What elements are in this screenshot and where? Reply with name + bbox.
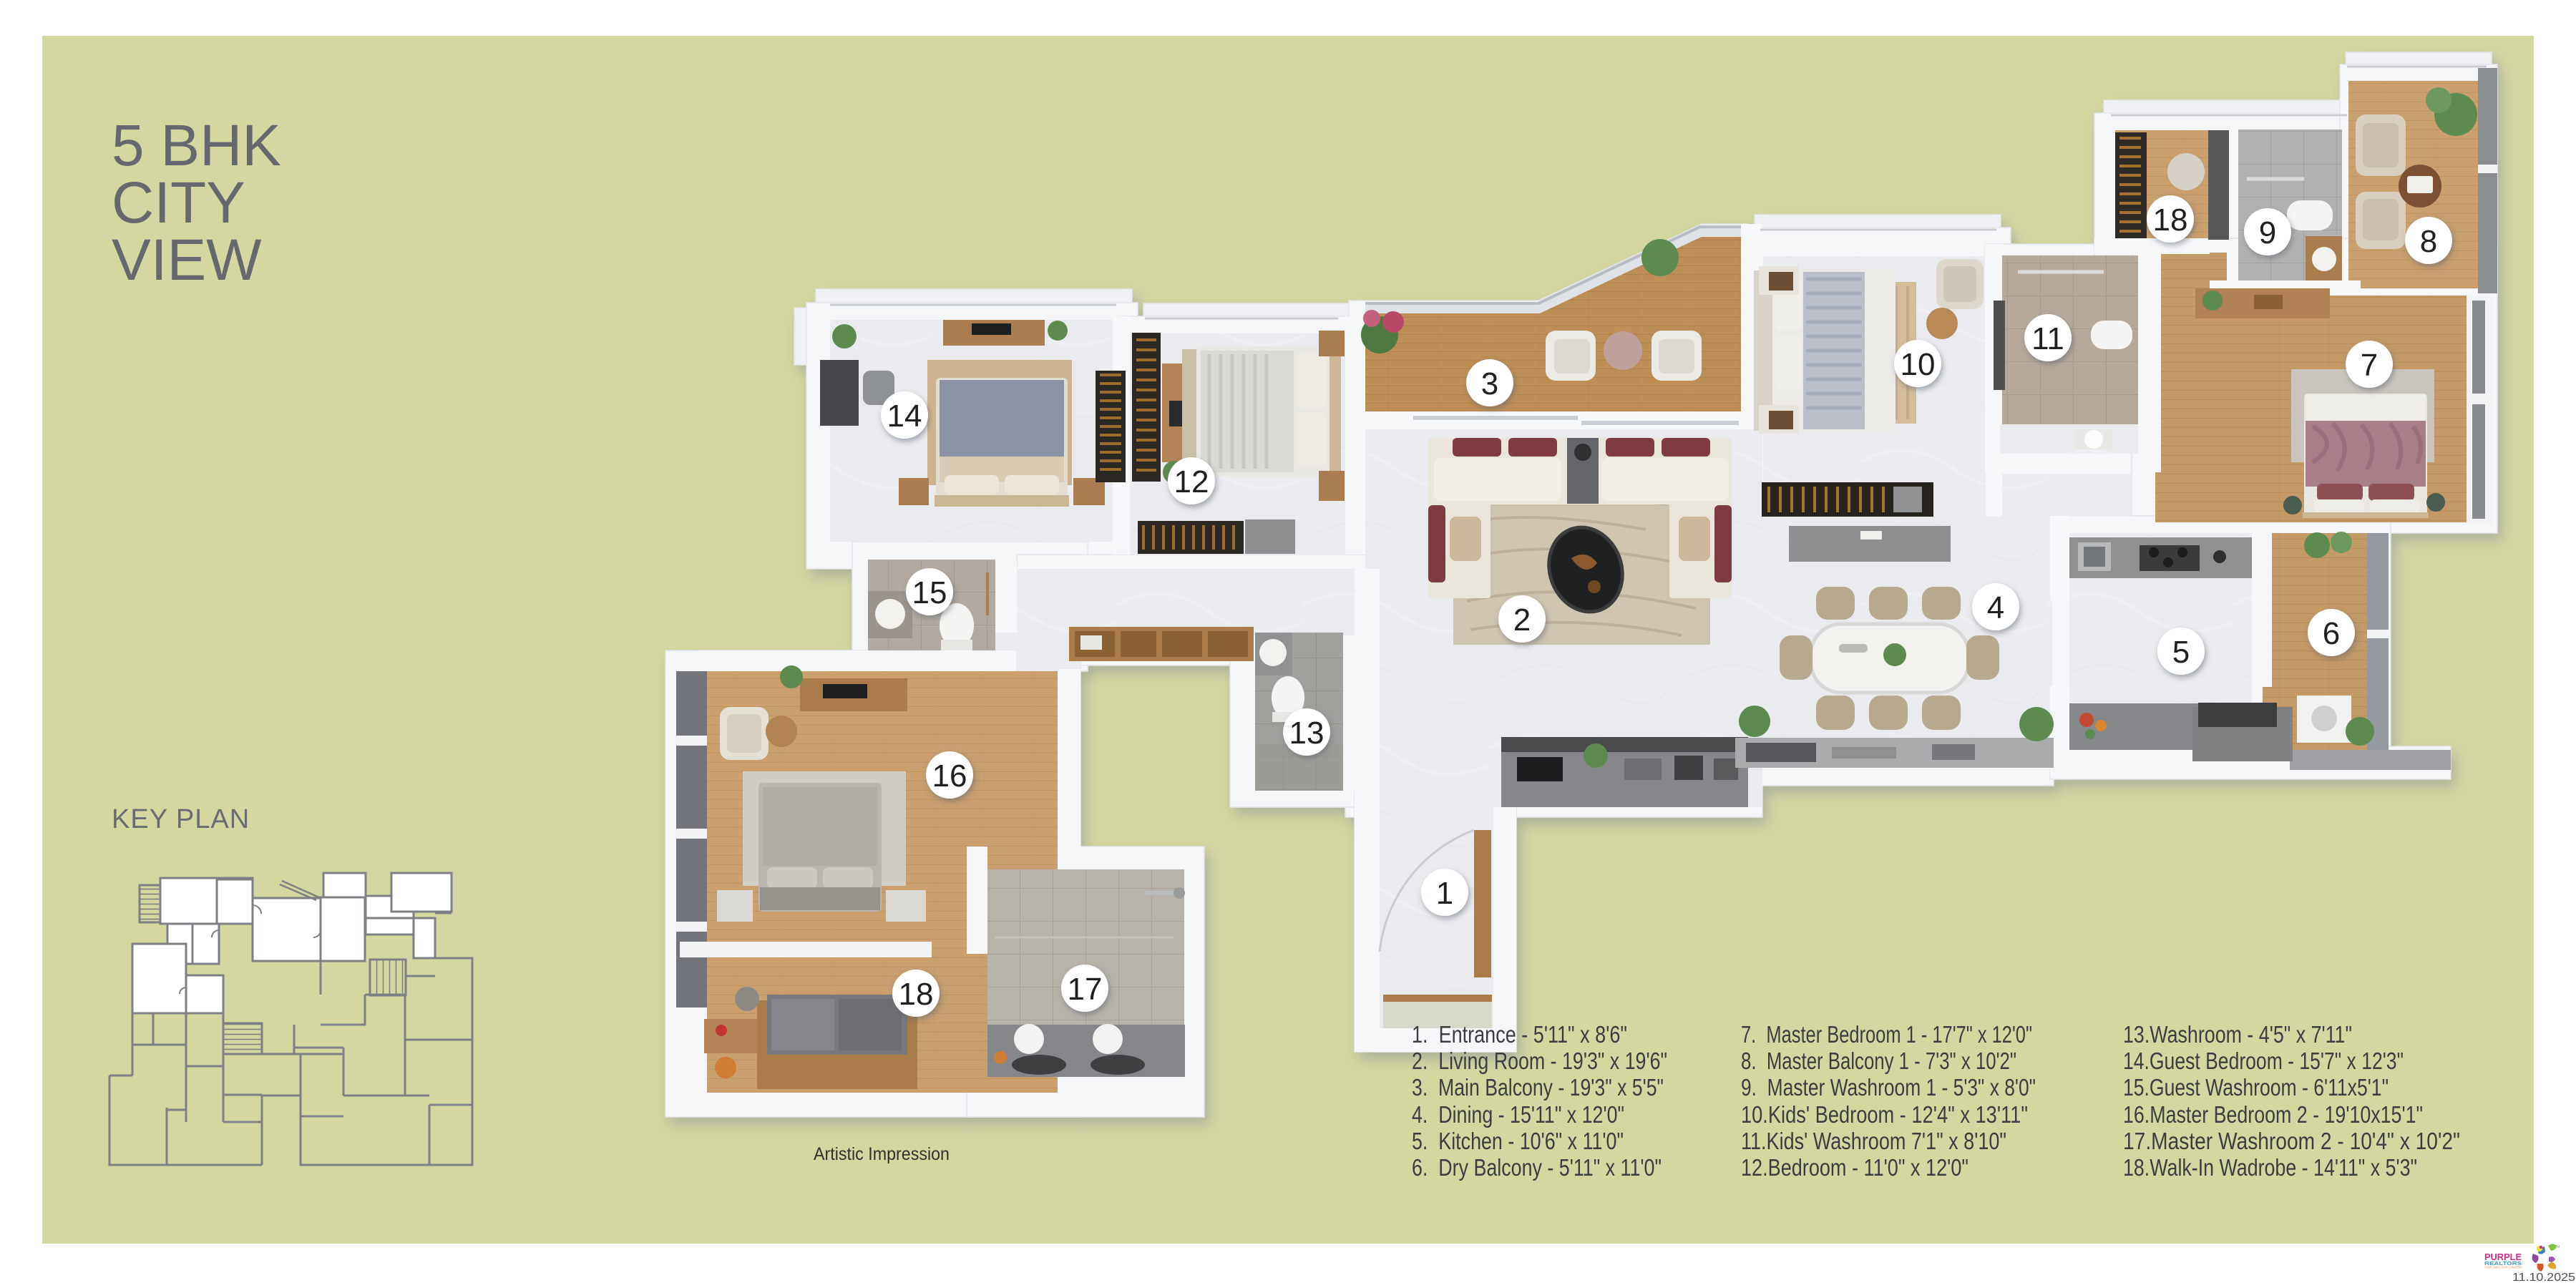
- svg-text:11.Kids' Washroom 7'1" x 8'10": 11.Kids' Washroom 7'1" x 8'10": [1741, 1128, 2006, 1154]
- svg-text:10.Kids' Bedroom - 12'4" x 13': 10.Kids' Bedroom - 12'4" x 13'11": [1741, 1101, 2028, 1128]
- svg-text:6: 6: [2323, 616, 2340, 651]
- svg-text:13: 13: [1289, 716, 1324, 751]
- svg-text:1. Entrance - 5'11" x 8'6": 1. Entrance - 5'11" x 8'6": [1412, 1021, 1627, 1048]
- svg-text:2: 2: [1513, 602, 1531, 638]
- svg-text:15.Guest Washroom - 6'11x5'1": 15.Guest Washroom - 6'11x5'1": [2123, 1074, 2389, 1101]
- svg-text:17: 17: [1068, 972, 1103, 1007]
- svg-text:KEY PLAN: KEY PLAN: [112, 804, 250, 834]
- svg-text:YOUR SMILE OUR CONCERN: YOUR SMILE OUR CONCERN: [2484, 1266, 2522, 1269]
- svg-text:16: 16: [932, 758, 967, 794]
- svg-text:Artistic Impression: Artistic Impression: [814, 1144, 950, 1164]
- svg-text:3. Main Balcony - 19'3" x 5'5: 3. Main Balcony - 19'3" x 5'5": [1412, 1074, 1664, 1101]
- svg-text:5: 5: [2172, 635, 2190, 670]
- svg-text:6. Dry Balcony - 5'11" x 11'0: 6. Dry Balcony - 5'11" x 11'0": [1412, 1154, 1662, 1181]
- svg-text:3: 3: [1481, 366, 1498, 401]
- svg-text:18: 18: [899, 977, 934, 1012]
- svg-text:2. Living Room - 19'3" x 19'6: 2. Living Room - 19'3" x 19'6": [1412, 1048, 1667, 1074]
- svg-text:7. Master Bedroom 1 - 17'7" x: 7. Master Bedroom 1 - 17'7" x 12'0": [1741, 1021, 2032, 1048]
- svg-text:14.Guest Bedroom - 15'7" x 12': 14.Guest Bedroom - 15'7" x 12'3": [2123, 1048, 2404, 1074]
- svg-text:5 BHK: 5 BHK: [112, 113, 281, 178]
- svg-text:12: 12: [1174, 464, 1209, 499]
- svg-text:CITY: CITY: [112, 170, 245, 235]
- svg-text:11.10.2025: 11.10.2025: [2512, 1272, 2575, 1284]
- svg-text:8. Master Balcony 1 - 7'3" x: 8. Master Balcony 1 - 7'3" x 10'2": [1741, 1048, 2016, 1074]
- svg-text:15: 15: [912, 575, 947, 610]
- svg-text:14: 14: [887, 399, 922, 434]
- svg-text:12.Bedroom - 11'0" x 12'0": 12.Bedroom - 11'0" x 12'0": [1741, 1154, 1968, 1181]
- svg-text:9: 9: [2259, 215, 2276, 250]
- svg-text:17.Master Washroom 2 - 10'4" x: 17.Master Washroom 2 - 10'4" x 10'2": [2123, 1128, 2460, 1154]
- svg-text:9. Master Washroom 1 - 5'3" x: 9. Master Washroom 1 - 5'3" x 8'0": [1741, 1074, 2036, 1101]
- svg-text:VIEW: VIEW: [112, 228, 262, 293]
- svg-text:16.Master Bedroom 2 - 19'10x15: 16.Master Bedroom 2 - 19'10x15'1": [2123, 1101, 2423, 1128]
- svg-text:8: 8: [2420, 224, 2437, 259]
- svg-text:1: 1: [1436, 876, 1453, 911]
- svg-text:13.Washroom - 4'5" x 7'11": 13.Washroom - 4'5" x 7'11": [2123, 1021, 2352, 1048]
- svg-text:10: 10: [1901, 347, 1936, 382]
- svg-text:4. Dining - 15'11" x 12'0": 4. Dining - 15'11" x 12'0": [1412, 1101, 1624, 1128]
- svg-text:18: 18: [2153, 203, 2188, 238]
- svg-text:11: 11: [2031, 321, 2064, 356]
- svg-text:4: 4: [1987, 590, 2004, 625]
- svg-text:18.Walk-In Wadrobe - 14'11" x: 18.Walk-In Wadrobe - 14'11" x 5'3": [2123, 1154, 2417, 1181]
- svg-text:TM: TM: [2555, 1245, 2560, 1249]
- svg-text:7: 7: [2361, 348, 2378, 383]
- svg-text:5. Kitchen - 10'6" x 11'0": 5. Kitchen - 10'6" x 11'0": [1412, 1128, 1624, 1154]
